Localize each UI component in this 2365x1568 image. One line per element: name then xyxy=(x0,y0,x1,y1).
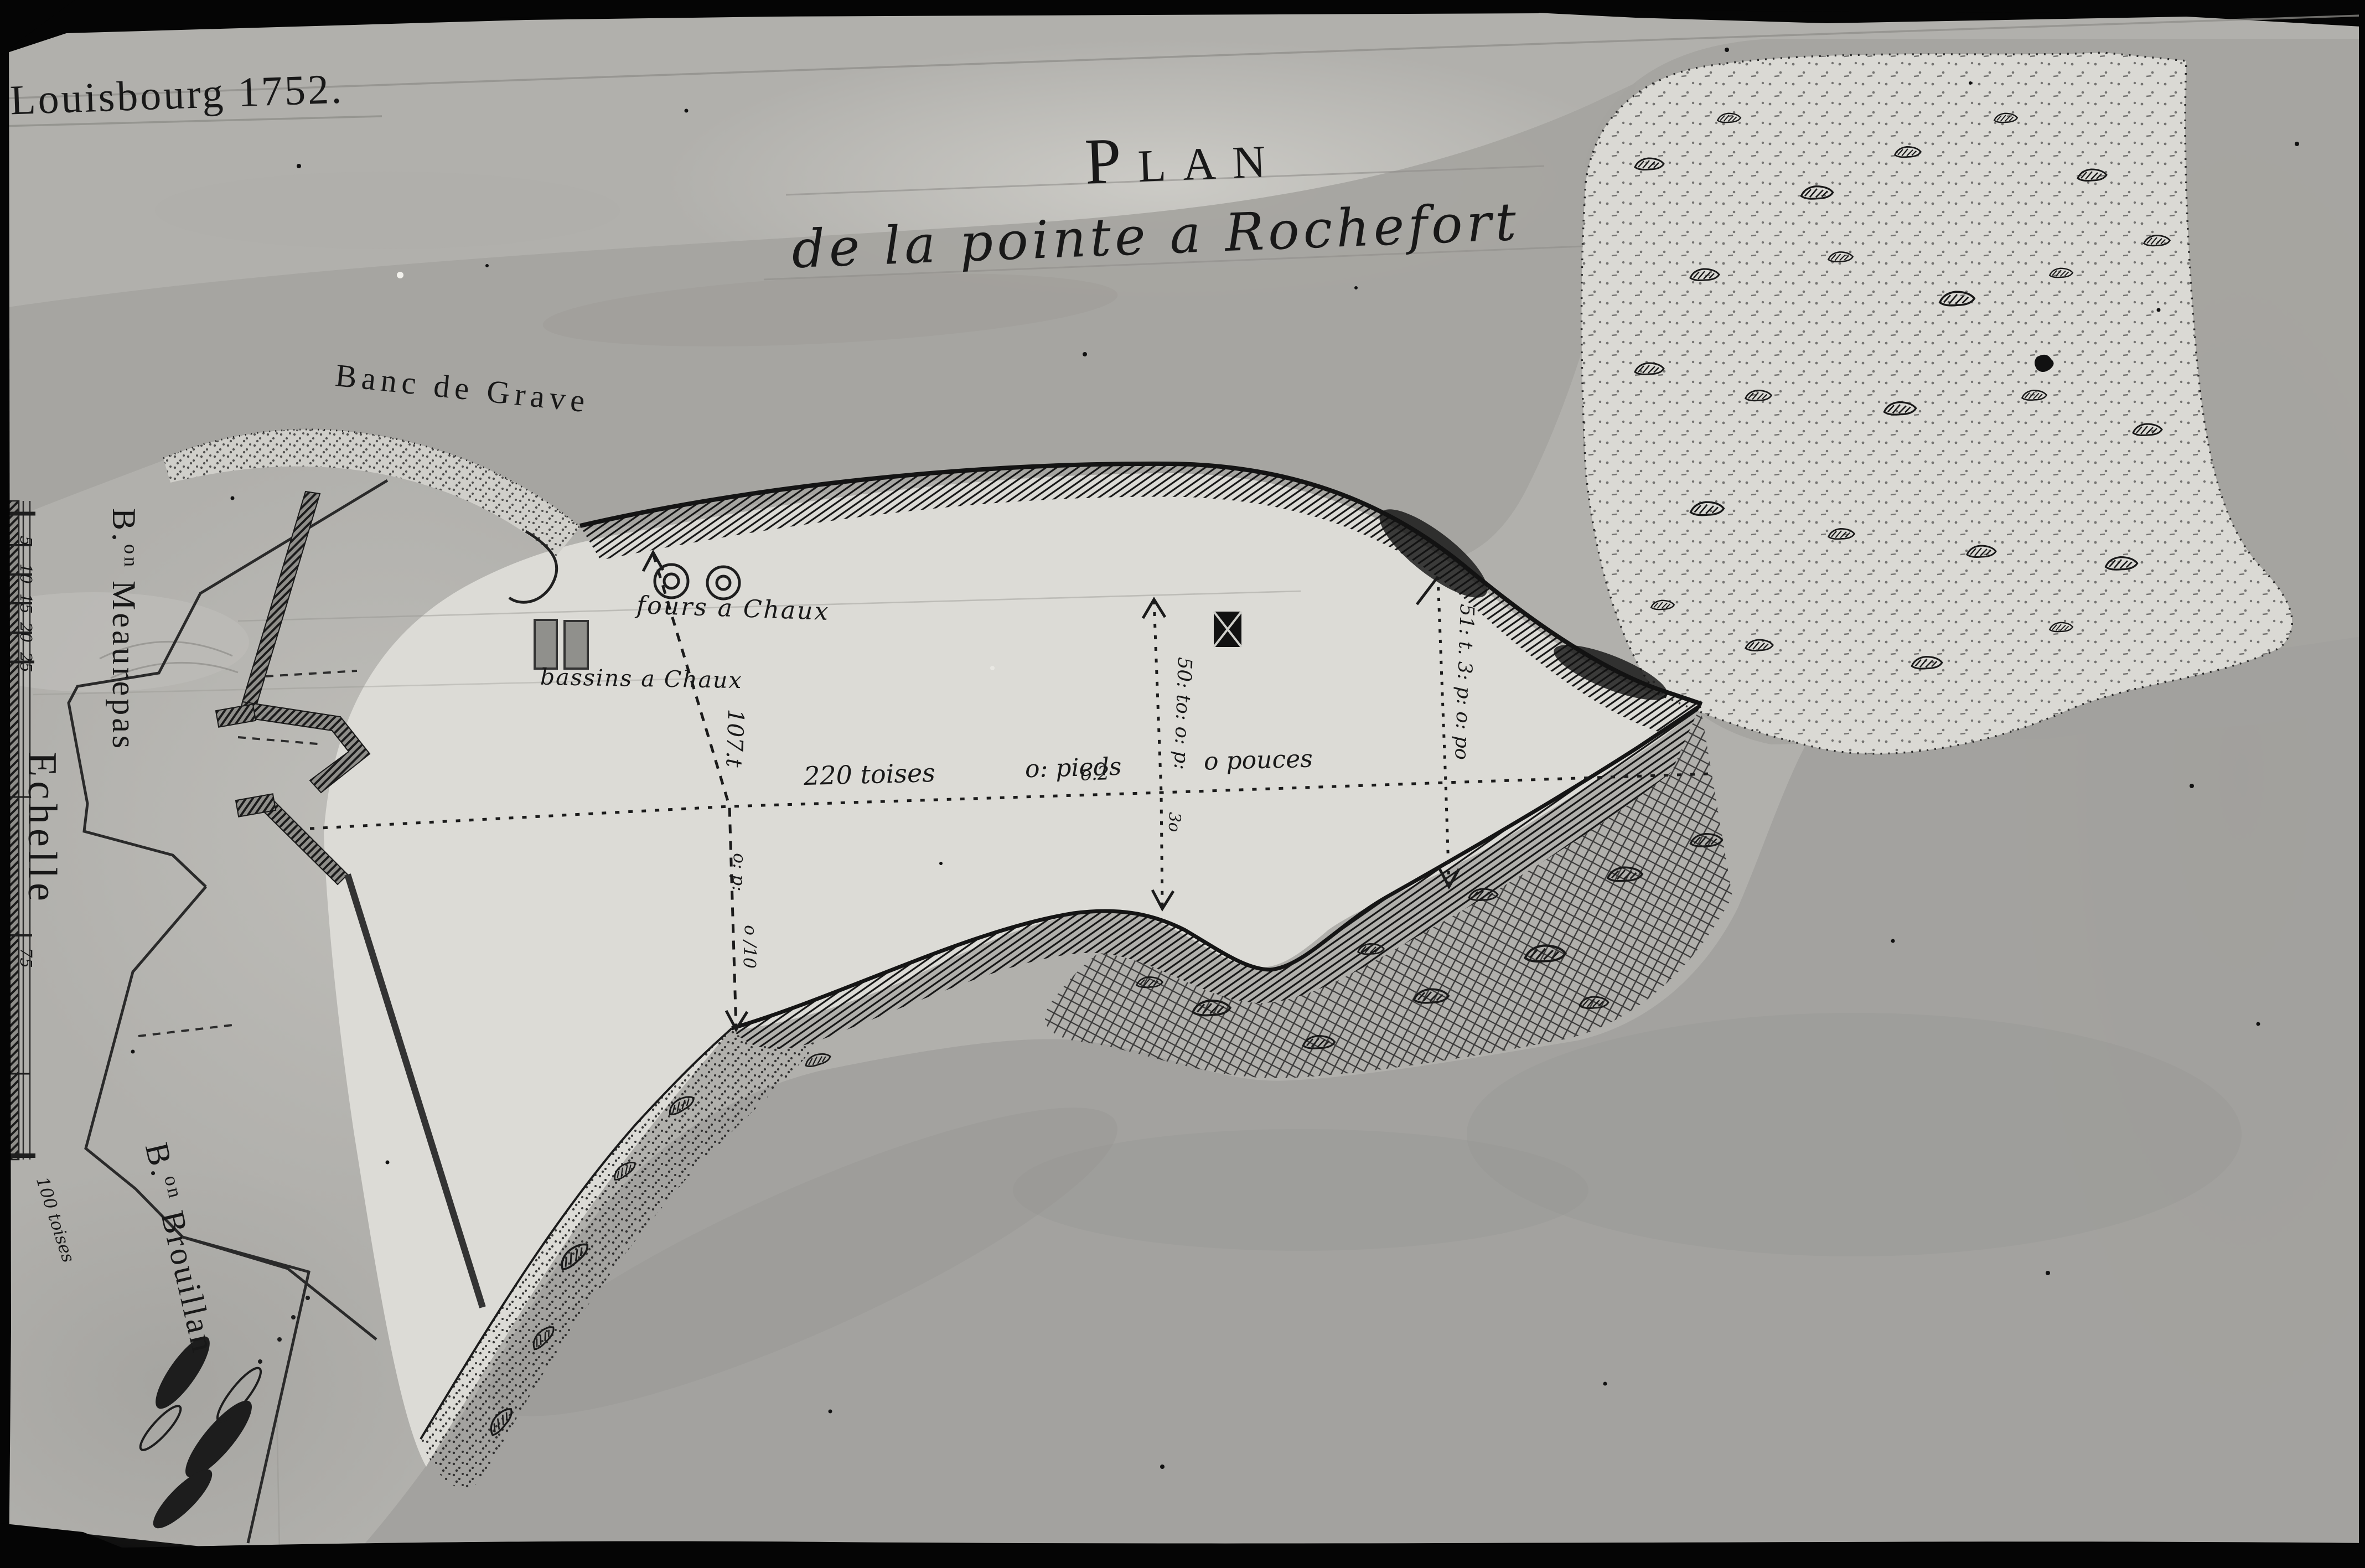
dim-220-toises: 220 toises xyxy=(803,758,935,791)
white-speck-2 xyxy=(990,666,995,670)
scale-tick-20: 20 xyxy=(17,622,35,643)
dim-107: 107.t xyxy=(721,708,748,768)
scanned-map-photo: Louisbourg 1752. Plan de la pointe a Roc… xyxy=(0,0,2365,1568)
dim-mark-c: o.2 xyxy=(1080,762,1110,785)
map-title: Plan xyxy=(1084,117,1284,200)
dim-50: 50: to: o: p: xyxy=(1169,657,1196,770)
redoubt-icon xyxy=(1214,612,1241,647)
white-speck xyxy=(397,272,403,278)
dim-mark-a: o: p: xyxy=(728,853,749,892)
label-bassins-a-chaux: bassins a Chaux xyxy=(540,664,743,694)
scale-tick-5: 5 xyxy=(17,536,35,546)
dim-mark-d: 3o xyxy=(1165,812,1184,832)
bastion-sup: on xyxy=(160,1173,187,1202)
scale-tick-75: 75 xyxy=(17,948,35,968)
bastion-abbr: B. xyxy=(106,508,142,544)
scale-tick-15: 15 xyxy=(17,593,35,614)
dim-mark-b: o /10 xyxy=(739,925,760,969)
label-echelle: Echelle xyxy=(18,752,65,905)
bastion-name: Meaurepas xyxy=(106,581,142,751)
scale-tick-10: 10 xyxy=(17,563,35,584)
scale-tick-25: 25 xyxy=(17,652,35,672)
bastion-sup: on xyxy=(120,544,142,570)
label-bastion-meaurepas: B.on Meaurepas xyxy=(105,508,143,751)
dim-0-pouces: o pouces xyxy=(1203,744,1313,775)
